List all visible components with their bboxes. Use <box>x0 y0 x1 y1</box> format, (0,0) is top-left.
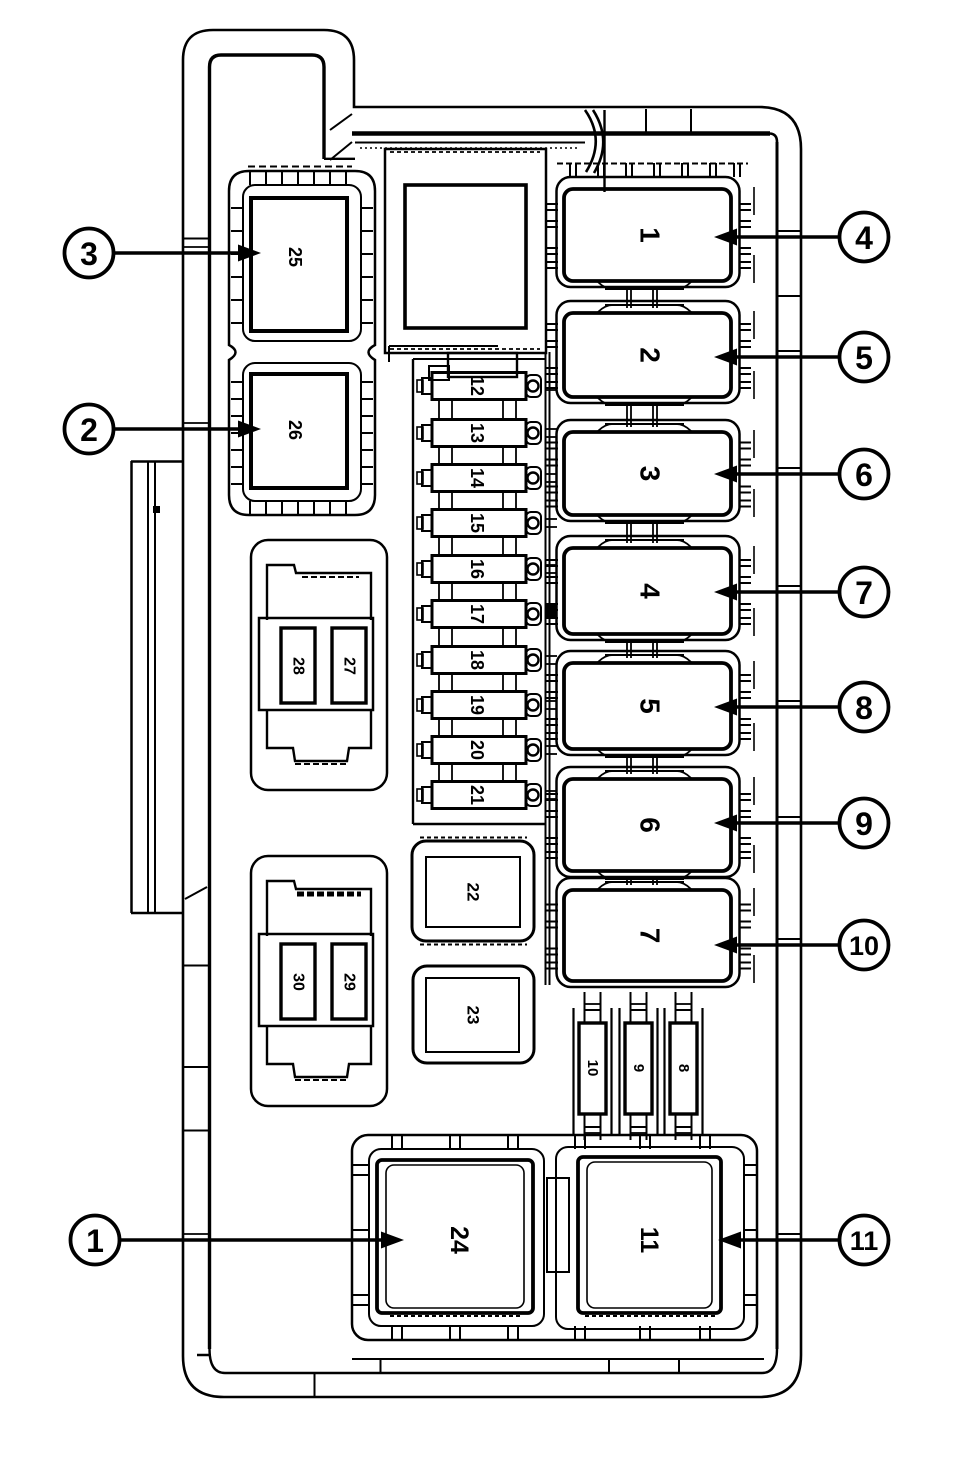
svg-text:3: 3 <box>80 236 98 272</box>
svg-text:15: 15 <box>467 513 487 533</box>
svg-text:11: 11 <box>635 1227 663 1254</box>
svg-text:8: 8 <box>675 1064 692 1072</box>
svg-text:11: 11 <box>850 1226 879 1256</box>
svg-text:28: 28 <box>290 657 307 675</box>
svg-text:4: 4 <box>855 220 873 256</box>
svg-text:1: 1 <box>635 227 666 243</box>
svg-text:13: 13 <box>467 423 487 443</box>
svg-text:6: 6 <box>855 457 873 493</box>
svg-text:9: 9 <box>630 1064 647 1072</box>
svg-text:5: 5 <box>635 698 666 714</box>
svg-text:8: 8 <box>855 690 873 726</box>
svg-text:12: 12 <box>467 376 487 396</box>
svg-text:25: 25 <box>285 247 305 267</box>
svg-text:9: 9 <box>855 806 873 842</box>
svg-text:20: 20 <box>467 740 487 760</box>
svg-text:5: 5 <box>855 340 873 376</box>
svg-text:21: 21 <box>467 785 487 805</box>
svg-text:30: 30 <box>290 973 307 991</box>
svg-text:10: 10 <box>849 931 879 961</box>
svg-text:14: 14 <box>467 468 487 488</box>
svg-text:2: 2 <box>80 412 98 448</box>
svg-text:29: 29 <box>341 973 358 991</box>
svg-text:23: 23 <box>464 1006 483 1025</box>
svg-text:2: 2 <box>635 347 666 363</box>
svg-text:4: 4 <box>635 583 666 599</box>
svg-text:10: 10 <box>584 1060 601 1077</box>
svg-text:1: 1 <box>86 1223 104 1259</box>
svg-text:17: 17 <box>467 604 487 624</box>
svg-text:18: 18 <box>467 650 487 670</box>
svg-text:16: 16 <box>467 559 487 579</box>
svg-text:24: 24 <box>445 1226 473 1254</box>
svg-text:7: 7 <box>855 575 873 611</box>
svg-text:7: 7 <box>635 928 666 944</box>
svg-text:22: 22 <box>464 883 483 902</box>
svg-text:19: 19 <box>467 695 487 715</box>
svg-text:26: 26 <box>285 420 305 440</box>
svg-text:3: 3 <box>635 466 666 482</box>
svg-text:27: 27 <box>341 657 358 675</box>
svg-text:6: 6 <box>635 817 666 833</box>
